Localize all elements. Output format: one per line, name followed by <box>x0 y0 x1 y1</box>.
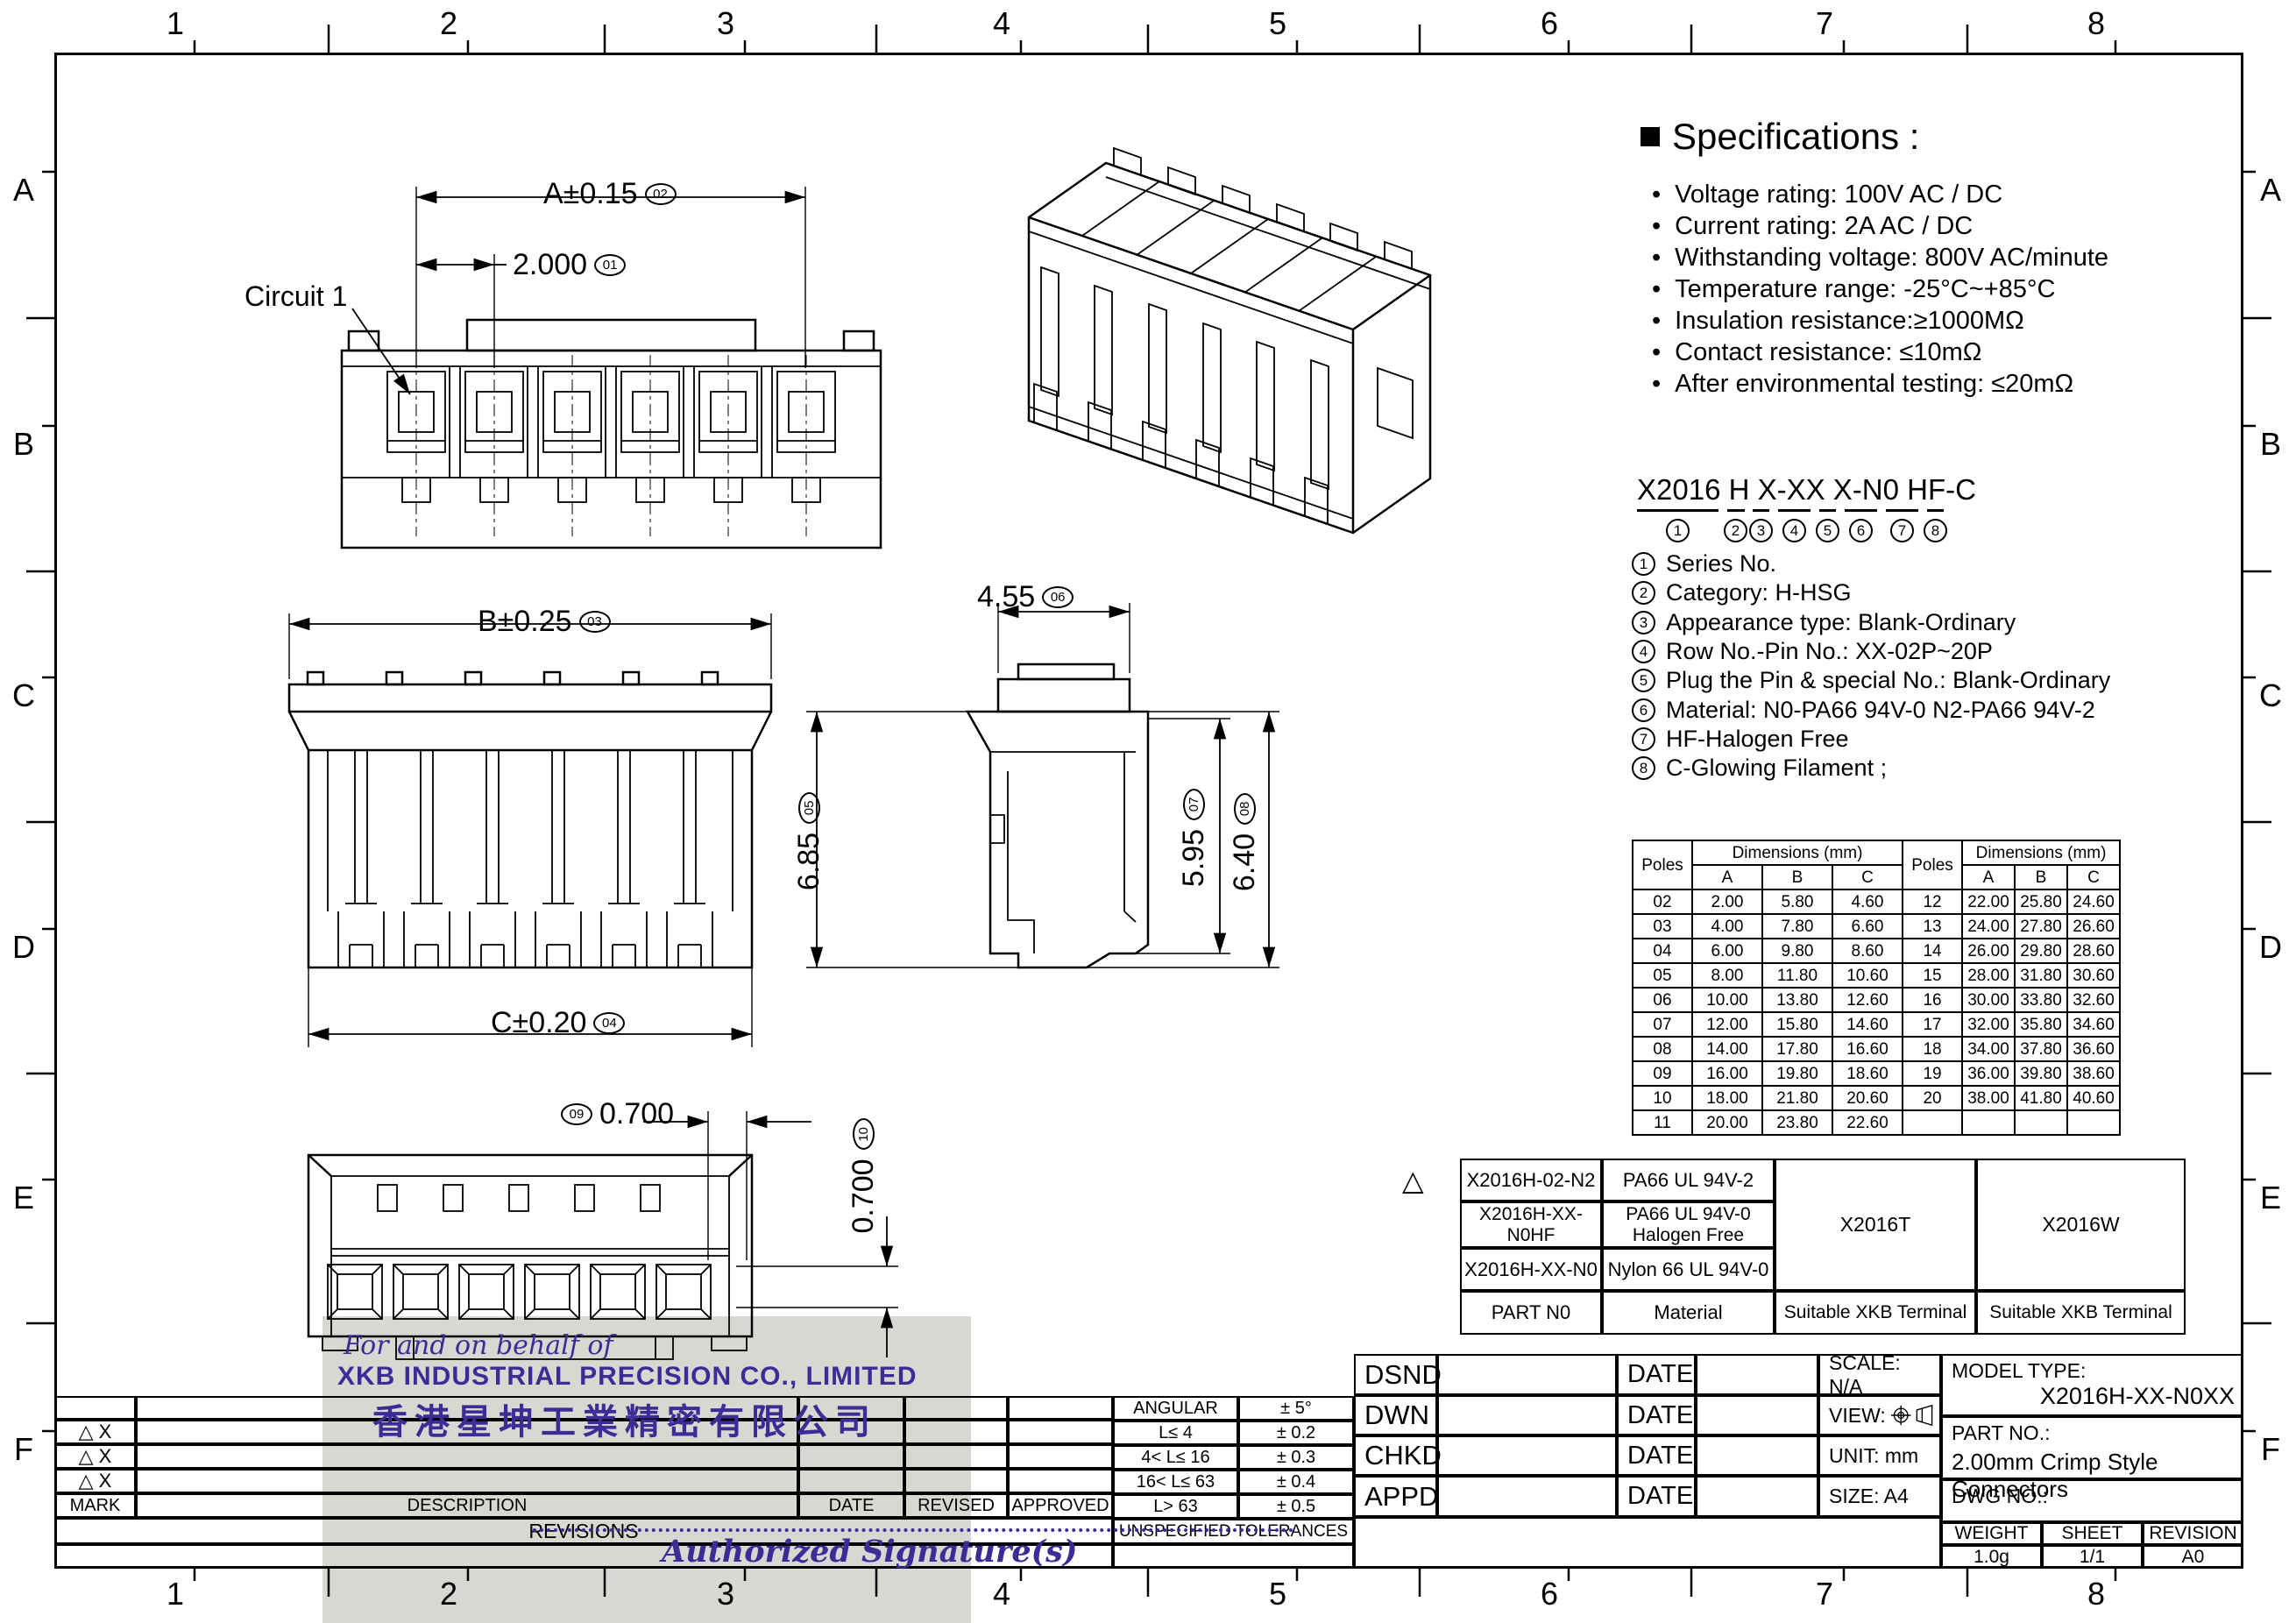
cell: 32.60 <box>2067 988 2120 1012</box>
cell: 10.00 <box>1692 988 1762 1012</box>
spec-item: •Voltage rating: 100V AC / DC <box>1652 181 2002 209</box>
dim-text: 0.700 <box>599 1097 674 1131</box>
drawing-sheet: 1 2 3 4 5 6 7 8 1 2 3 4 5 6 7 8 A B C D … <box>0 0 2296 1623</box>
triangle-mark: △ <box>1402 1164 1424 1197</box>
spec-item: •Insulation resistance:≥1000MΩ <box>1652 307 2024 336</box>
grid-row-label: C <box>2 677 46 714</box>
revision-cell <box>798 1469 904 1493</box>
revision-cell <box>136 1444 798 1469</box>
tolerance-cell: ± 0.4 <box>1238 1470 1354 1494</box>
grid-col-label: 3 <box>699 5 752 42</box>
titleblock-label: DWN <box>1354 1395 1437 1435</box>
dim-tag: 05 <box>798 792 820 824</box>
dot-bullet-icon: • <box>1652 275 1661 304</box>
material-footer: Suitable XKB Terminal <box>1976 1291 2186 1335</box>
cell: 24.60 <box>2067 889 2120 914</box>
grid-col-label: 5 <box>1251 1576 1304 1612</box>
unit-cell: UNIT: mm <box>1818 1435 1941 1476</box>
dim-640: 6.40 08 <box>1226 763 1263 921</box>
cell: 20.00 <box>1692 1110 1762 1135</box>
dim-text: C±0.20 <box>491 1006 586 1040</box>
dim-685: 6.85 05 <box>790 758 828 925</box>
cell: Poles <box>1903 840 1962 889</box>
cell: 05 <box>1633 963 1692 988</box>
dim-text: B±0.25 <box>478 605 572 639</box>
cell: 06 <box>1633 988 1692 1012</box>
code-digit: 2 <box>1724 519 1747 542</box>
cell: 29.80 <box>2015 939 2067 963</box>
scale-cell: SCALE: N/A <box>1818 1354 1941 1395</box>
grid-row-label: E <box>2249 1180 2292 1216</box>
table-row: 022.005.804.601222.0025.8024.60 <box>1633 889 2120 914</box>
code-underline <box>1845 509 1877 512</box>
revision-value: A0 <box>2143 1545 2243 1569</box>
cell: 34.60 <box>2067 1012 2120 1037</box>
material-footer: PART N0 <box>1460 1291 1602 1335</box>
titleblock-blank <box>1437 1435 1617 1476</box>
revision-header: REVISED <box>904 1493 1008 1518</box>
cell: 4.60 <box>1832 889 1903 914</box>
revision-header: REVISION <box>2143 1522 2243 1545</box>
cell: A <box>1962 865 2015 889</box>
cell: 6.00 <box>1692 939 1762 963</box>
dim-tag: 01 <box>594 254 626 276</box>
dot-bullet-icon: • <box>1652 338 1661 367</box>
tolerance-cell: ± 0.3 <box>1238 1445 1354 1470</box>
titleblock-blank <box>1696 1354 1818 1395</box>
cell <box>1962 1110 2015 1135</box>
spec-item: •Withstanding voltage: 800V AC/minute <box>1652 244 2108 273</box>
grid-row-label: C <box>2249 677 2292 714</box>
cell: 31.80 <box>2015 963 2067 988</box>
material-cell: PA66 UL 94V-2 <box>1602 1159 1775 1201</box>
table-row: 058.0011.8010.601528.0031.8030.60 <box>1633 963 2120 988</box>
sheet-value: 1/1 <box>2042 1545 2143 1569</box>
grid-row-label: F <box>2249 1431 2292 1468</box>
cell: 21.80 <box>1762 1086 1832 1110</box>
part-no-label: PART NO.: <box>1952 1421 2050 1445</box>
cell: 41.80 <box>2015 1086 2067 1110</box>
tolerance-cell: ± 5° <box>1238 1396 1354 1421</box>
cell: 5.80 <box>1762 889 1832 914</box>
dim-text: 6.85 <box>792 833 826 890</box>
cell <box>2015 1110 2067 1135</box>
view-cell: VIEW: <box>1818 1395 1941 1435</box>
grid-row-label: D <box>2249 929 2292 966</box>
third-angle-projection-icon <box>1891 1400 1939 1430</box>
cell: 12.60 <box>1832 988 1903 1012</box>
grid-row-label: E <box>2 1180 46 1216</box>
cell: 8.60 <box>1832 939 1903 963</box>
cell: 17.80 <box>1762 1037 1832 1061</box>
table-row: A B C A B C <box>1633 865 2120 889</box>
cell: 28.60 <box>2067 939 2120 963</box>
date-label: DATE <box>1617 1435 1696 1476</box>
cell: 38.00 <box>1962 1086 2015 1110</box>
code-underline <box>1886 509 1918 512</box>
titleblock-label: APPD <box>1354 1476 1437 1517</box>
revision-cell <box>904 1444 1008 1469</box>
stamp-line3: 香港星坤工業精密有限公司 <box>372 1393 877 1444</box>
material-cell: Nylon 66 UL 94V-0 <box>1602 1248 1775 1291</box>
terminal-cell: X2016T <box>1775 1159 1976 1291</box>
revision-header: DATE <box>798 1493 904 1518</box>
titleblock-blank <box>1437 1354 1617 1395</box>
cell: 22.00 <box>1962 889 2015 914</box>
cell: 17 <box>1903 1012 1962 1037</box>
code-underline <box>1753 509 1769 512</box>
cell: 7.80 <box>1762 914 1832 939</box>
cell: 26.00 <box>1962 939 2015 963</box>
revision-header: MARK <box>54 1493 136 1518</box>
dot-bullet-icon: • <box>1652 370 1661 399</box>
material-part-cell: X2016H-XX-N0HF <box>1460 1201 1602 1248</box>
revision-cell <box>904 1420 1008 1444</box>
grid-col-label: 5 <box>1251 5 1304 42</box>
cell: 36.60 <box>2067 1037 2120 1061</box>
dim-tag: 10 <box>853 1118 875 1150</box>
stamp-line1: For and on behalf of <box>344 1330 613 1361</box>
cell: 37.80 <box>2015 1037 2067 1061</box>
titleblock-blank <box>1696 1395 1818 1435</box>
cell: 02 <box>1633 889 1692 914</box>
dim-tag: 02 <box>645 183 677 205</box>
cell: 19.80 <box>1762 1061 1832 1086</box>
cell: 9.80 <box>1762 939 1832 963</box>
cell: 08 <box>1633 1037 1692 1061</box>
terminal-cell: X2016W <box>1976 1159 2186 1291</box>
weight-value: 1.0g <box>1941 1545 2042 1569</box>
cell: 23.80 <box>1762 1110 1832 1135</box>
weight-header: WEIGHT <box>1941 1522 2042 1545</box>
table-row: 1120.0023.8022.60 <box>1633 1110 2120 1135</box>
cell: 26.60 <box>2067 914 2120 939</box>
spec-item: •After environmental testing: ≤20mΩ <box>1652 370 2073 399</box>
revision-mark-cell: △ X <box>54 1444 136 1469</box>
grid-col-label: 7 <box>1798 5 1851 42</box>
cell: 15 <box>1903 963 1962 988</box>
grid-col-label: 6 <box>1523 5 1576 42</box>
revision-cell <box>798 1444 904 1469</box>
dim-700b: 0.700 10 <box>844 1102 882 1251</box>
titleblock-blank <box>1696 1476 1818 1517</box>
table-row: 046.009.808.601426.0029.8028.60 <box>1633 939 2120 963</box>
spec-item: •Temperature range: -25°C~+85°C <box>1652 275 2055 304</box>
cell <box>1903 1110 1962 1135</box>
revision-cell <box>1008 1444 1113 1469</box>
dim-B: B±0.25 03 <box>478 605 611 639</box>
dim-tag: 06 <box>1042 586 1074 608</box>
dim-tag: 03 <box>579 611 611 633</box>
cell: 09 <box>1633 1061 1692 1086</box>
cell: 20 <box>1903 1086 1962 1110</box>
grid-col-label: 6 <box>1523 1576 1576 1612</box>
code-digit: 3 <box>1749 519 1773 542</box>
grid-col-label: 8 <box>2070 5 2122 42</box>
revision-cell <box>54 1396 136 1420</box>
model-type-label: MODEL TYPE: <box>1952 1359 2086 1383</box>
bottom-view <box>308 1111 898 1359</box>
cell: Dimensions (mm) <box>1692 840 1903 865</box>
cell: 10.60 <box>1832 963 1903 988</box>
grid-col-label: 2 <box>422 1576 475 1612</box>
titleblock-blank <box>1696 1435 1818 1476</box>
cell: 35.80 <box>2015 1012 2067 1037</box>
model-type-value: X2016H-XX-N0XX <box>2040 1383 2242 1410</box>
material-part-cell: X2016H-02-N2 <box>1460 1159 1602 1201</box>
tolerance-cell: ± 0.5 <box>1238 1494 1354 1519</box>
grid-col-label: 2 <box>422 5 475 42</box>
code-digit: 7 <box>1890 519 1914 542</box>
revision-cell <box>1008 1420 1113 1444</box>
cell: C <box>2067 865 2120 889</box>
table-row: 0916.0019.8018.601936.0039.8038.60 <box>1633 1061 2120 1086</box>
cell: 38.60 <box>2067 1061 2120 1086</box>
cell: 12 <box>1903 889 1962 914</box>
table-row: 0712.0015.8014.601732.0035.8034.60 <box>1633 1012 2120 1037</box>
code-legend-item: 3Appearance type: Blank-Ordinary <box>1632 609 2016 636</box>
titleblock-blank <box>1437 1395 1617 1435</box>
dimensions-table: Poles Dimensions (mm) Poles Dimensions (… <box>1632 840 2121 1136</box>
material-part-cell: X2016H-XX-N0 <box>1460 1248 1602 1291</box>
grid-row-label: A <box>2249 172 2292 209</box>
date-label: DATE <box>1617 1395 1696 1435</box>
dim-tag: 07 <box>1183 789 1205 820</box>
dim-tag: 08 <box>1234 793 1256 825</box>
cell: 16.60 <box>1832 1037 1903 1061</box>
date-label: DATE <box>1617 1476 1696 1517</box>
cell: 20.60 <box>1832 1086 1903 1110</box>
dim-595: 5.95 07 <box>1175 759 1212 917</box>
cell: 34.00 <box>1962 1037 2015 1061</box>
code-legend-item: 5Plug the Pin & special No.: Blank-Ordin… <box>1632 667 2110 694</box>
grid-col-label: 4 <box>975 1576 1028 1612</box>
part-no-cell: PART NO.: 2.00mm Crimp Style Connectors <box>1941 1416 2243 1479</box>
dim-tag: 09 <box>561 1103 592 1125</box>
square-bullet-icon <box>1641 127 1660 146</box>
dot-bullet-icon: • <box>1652 244 1661 273</box>
table-row: Poles Dimensions (mm) Poles Dimensions (… <box>1633 840 2120 865</box>
cell: 11 <box>1633 1110 1692 1135</box>
grid-col-label: 4 <box>975 5 1028 42</box>
dim-pitch: 2.000 01 <box>513 248 626 282</box>
table-row: 034.007.806.601324.0027.8026.60 <box>1633 914 2120 939</box>
cavity-view <box>289 613 771 1047</box>
cell: 15.80 <box>1762 1012 1832 1037</box>
tolerance-cell: L> 63 <box>1113 1494 1238 1519</box>
titleblock-blank <box>1437 1476 1617 1517</box>
code-legend-item: 1Series No. <box>1632 550 1776 578</box>
material-footer: Material <box>1602 1291 1775 1335</box>
model-type-cell: MODEL TYPE: X2016H-XX-N0XX <box>1941 1354 2243 1416</box>
sheet-header: SHEET <box>2042 1522 2143 1545</box>
dim-C: C±0.20 04 <box>491 1006 625 1040</box>
cell: 30.60 <box>2067 963 2120 988</box>
size-cell: SIZE: A4 <box>1818 1476 1941 1517</box>
dim-text: A±0.15 <box>543 177 638 211</box>
cell: 2.00 <box>1692 889 1762 914</box>
stamp-line2: XKB INDUSTRIAL PRECISION CO., LIMITED <box>337 1362 917 1392</box>
material-footer: Suitable XKB Terminal <box>1775 1291 1976 1335</box>
cell <box>2067 1110 2120 1135</box>
code-digit: 4 <box>1782 519 1806 542</box>
cell: 03 <box>1633 914 1692 939</box>
cell: 24.00 <box>1962 914 2015 939</box>
cell: 10 <box>1633 1086 1692 1110</box>
tolerance-cell <box>1113 1544 1354 1569</box>
dim-text: 6.40 <box>1228 833 1262 891</box>
part-number-code: X2016 H X-XX X-N0 HF-C <box>1637 473 1976 507</box>
code-underline <box>1727 509 1745 512</box>
cell: A <box>1692 865 1762 889</box>
code-underline <box>1637 509 1718 512</box>
front-view <box>342 187 881 548</box>
dot-bullet-icon: • <box>1652 307 1661 336</box>
cell: Dimensions (mm) <box>1962 840 2120 865</box>
grid-row-label: D <box>2 929 46 966</box>
cell: 30.00 <box>1962 988 2015 1012</box>
cell: 32.00 <box>1962 1012 2015 1037</box>
code-legend-item: 2Category: H-HSG <box>1632 579 1852 606</box>
cell: 25.80 <box>2015 889 2067 914</box>
cell: 11.80 <box>1762 963 1832 988</box>
revision-cell <box>904 1469 1008 1493</box>
cell: 13.80 <box>1762 988 1832 1012</box>
cell: 14.60 <box>1832 1012 1903 1037</box>
code-legend-item: 6Material: N0-PA66 94V-0 N2-PA66 94V-2 <box>1632 697 2095 724</box>
code-legend-item: 4Row No.-Pin No.: XX-02P~20P <box>1632 638 1993 665</box>
dwg-no-cell: DWG NO.: <box>1941 1479 2243 1522</box>
circuit1-label: Circuit 1 <box>244 280 347 313</box>
dim-text: 5.95 <box>1177 829 1211 887</box>
revision-header: DESCRIPTION <box>136 1493 798 1518</box>
code-legend-item: 8C-Glowing Filament ; <box>1632 755 1887 782</box>
spec-item: •Current rating: 2A AC / DC <box>1652 212 1973 241</box>
code-underline <box>1927 509 1944 512</box>
date-label: DATE <box>1617 1354 1696 1395</box>
cell: 13 <box>1903 914 1962 939</box>
revision-cell <box>1008 1469 1113 1493</box>
stamp-line4: Authorized Signature(s) <box>662 1534 1077 1570</box>
table-row: 1018.0021.8020.602038.0041.8040.60 <box>1633 1086 2120 1110</box>
code-digit: 1 <box>1666 519 1690 542</box>
cell: 36.00 <box>1962 1061 2015 1086</box>
grid-col-label: 7 <box>1798 1576 1851 1612</box>
code-underline <box>1819 509 1836 512</box>
grid-row-label: F <box>2 1431 46 1468</box>
material-cell: PA66 UL 94V-0 Halogen Free <box>1602 1201 1775 1248</box>
cell: 19 <box>1903 1061 1962 1086</box>
grid-col-label: 8 <box>2070 1576 2122 1612</box>
cell: 4.00 <box>1692 914 1762 939</box>
tolerance-cell: ± 0.2 <box>1238 1421 1354 1445</box>
tolerance-cell: 16< L≤ 63 <box>1113 1470 1238 1494</box>
tolerance-cell: ANGULAR <box>1113 1396 1238 1421</box>
titleblock-label: CHKD <box>1354 1435 1437 1476</box>
specifications-title: Specifications : <box>1641 116 1919 158</box>
revision-cell <box>904 1396 1008 1420</box>
titleblock-blank <box>1354 1517 1941 1569</box>
revision-cell <box>1008 1396 1113 1420</box>
revision-mark-cell: △ X <box>54 1469 136 1493</box>
titleblock-label: DSND <box>1354 1354 1437 1395</box>
cell: Poles <box>1633 840 1692 889</box>
cell: 14 <box>1903 939 1962 963</box>
dim-text: 2.000 <box>513 248 587 282</box>
dim-A: A±0.15 02 <box>543 177 677 211</box>
cell: 33.80 <box>2015 988 2067 1012</box>
code-digit: 6 <box>1849 519 1873 542</box>
grid-row-label: B <box>2 426 46 463</box>
tolerance-cell: 4< L≤ 16 <box>1113 1445 1238 1470</box>
code-underline <box>1778 509 1811 512</box>
grid-col-label: 3 <box>699 1576 752 1612</box>
cell: 18.60 <box>1832 1061 1903 1086</box>
dim-text: 0.700 <box>847 1159 881 1233</box>
cell: 6.60 <box>1832 914 1903 939</box>
cell: 07 <box>1633 1012 1692 1037</box>
dot-bullet-icon: • <box>1652 212 1661 241</box>
cell: 14.00 <box>1692 1037 1762 1061</box>
cell: 39.80 <box>2015 1061 2067 1086</box>
dim-700a: 09 0.700 <box>561 1097 674 1131</box>
grid-row-label: B <box>2249 426 2292 463</box>
spec-item: •Contact resistance: ≤10mΩ <box>1652 338 1981 367</box>
cell: 40.60 <box>2067 1086 2120 1110</box>
cell: 16.00 <box>1692 1061 1762 1086</box>
dim-tag: 04 <box>593 1012 625 1034</box>
cell: 28.00 <box>1962 963 2015 988</box>
isometric-view <box>1029 148 1430 533</box>
table-row: 0814.0017.8016.601834.0037.8036.60 <box>1633 1037 2120 1061</box>
grid-col-label: 1 <box>149 1576 202 1612</box>
revision-header: APPROVED <box>1008 1493 1113 1518</box>
cell: B <box>1762 865 1832 889</box>
cell: 18.00 <box>1692 1086 1762 1110</box>
grid-col-label: 1 <box>149 5 202 42</box>
code-digit: 5 <box>1816 519 1839 542</box>
cell: 16 <box>1903 988 1962 1012</box>
cell: 27.80 <box>2015 914 2067 939</box>
revision-cell <box>136 1469 798 1493</box>
revision-mark-cell: △ X <box>54 1420 136 1444</box>
dim-text: 4.55 <box>977 580 1035 614</box>
cell: 22.60 <box>1832 1110 1903 1135</box>
stamp-dotted-line <box>533 1528 1293 1532</box>
cell: 8.00 <box>1692 963 1762 988</box>
cell: 04 <box>1633 939 1692 963</box>
cell: C <box>1832 865 1903 889</box>
view-label: VIEW: <box>1829 1404 1886 1428</box>
cell: 18 <box>1903 1037 1962 1061</box>
tolerance-cell: L≤ 4 <box>1113 1421 1238 1445</box>
grid-row-label: A <box>2 172 46 209</box>
dim-455: 4.55 06 <box>977 580 1074 614</box>
cell: 12.00 <box>1692 1012 1762 1037</box>
dot-bullet-icon: • <box>1652 181 1661 209</box>
code-legend-item: 7HF-Halogen Free <box>1632 726 1849 753</box>
cell: B <box>2015 865 2067 889</box>
table-row: 0610.0013.8012.601630.0033.8032.60 <box>1633 988 2120 1012</box>
code-digit: 8 <box>1924 519 1947 542</box>
